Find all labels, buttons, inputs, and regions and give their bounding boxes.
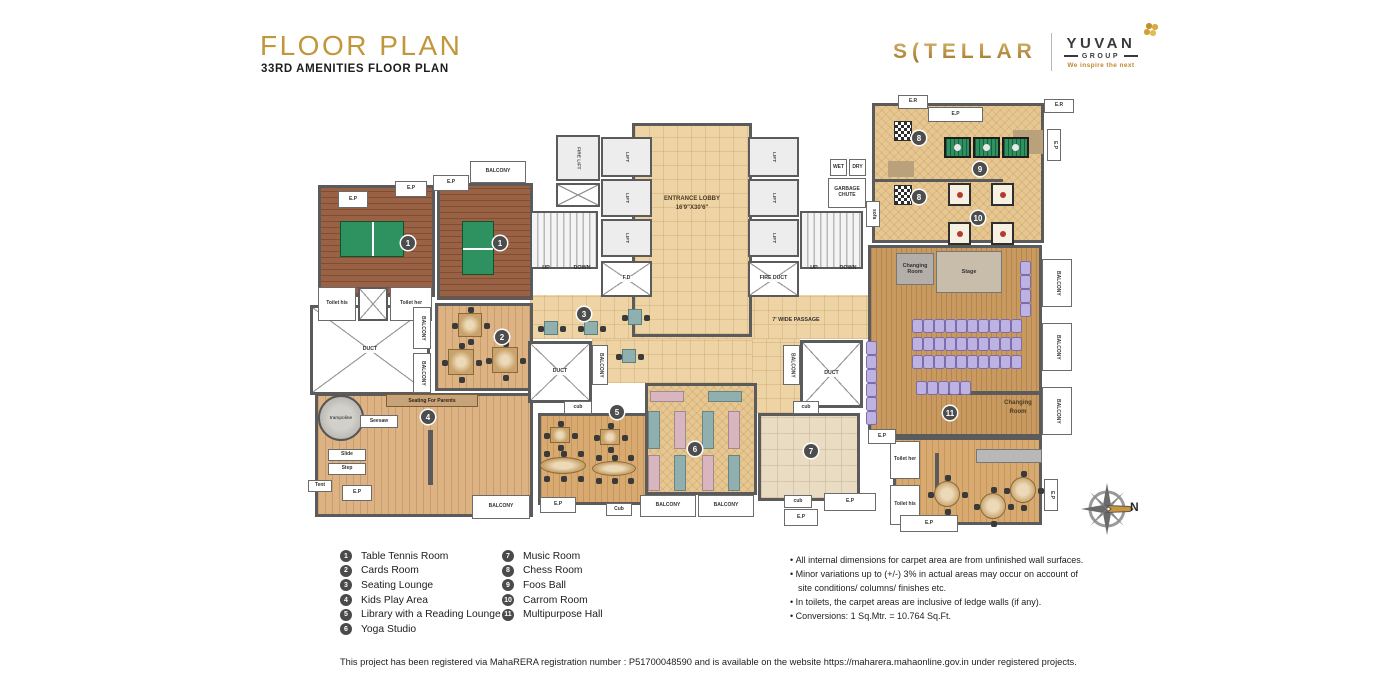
legend-label: Multipurpose Hall bbox=[523, 609, 603, 620]
chair-icon bbox=[1011, 319, 1022, 333]
cards-room bbox=[435, 303, 533, 391]
chair-icon bbox=[596, 478, 602, 484]
counter bbox=[976, 449, 1042, 463]
chair-icon bbox=[578, 451, 584, 457]
chair-column bbox=[1020, 261, 1031, 317]
chair-icon bbox=[974, 504, 980, 510]
changing-room-label: ChangingRoom bbox=[994, 399, 1042, 417]
vopen-balcony: BALCONY bbox=[783, 345, 800, 385]
chair-icon bbox=[956, 337, 967, 351]
legend-column-2: 7Music Room8Chess Room9Foos Ball10Carrom… bbox=[502, 549, 603, 622]
legend-marker: 5 bbox=[340, 609, 352, 621]
yuvan-wordmark: YUVAN bbox=[1066, 36, 1135, 51]
legend-label: Yoga Studio bbox=[361, 624, 416, 635]
chair-icon bbox=[945, 475, 951, 481]
yuvan-logo: YUVAN GROUP We inspire the next bbox=[1064, 36, 1138, 69]
open-cub: cub bbox=[564, 401, 592, 414]
xbox-f-d: F.D bbox=[601, 261, 652, 297]
note-item: In toilets, the carpet areas are inclusi… bbox=[790, 595, 1092, 609]
mk-7: 7 bbox=[804, 444, 818, 458]
yoga-mat bbox=[728, 455, 740, 491]
yoga-mat bbox=[728, 411, 740, 449]
open-toilet-his: Toilet his bbox=[318, 287, 356, 321]
chair-icon bbox=[989, 355, 1000, 369]
round-table bbox=[980, 493, 1006, 519]
chair-icon bbox=[962, 492, 968, 498]
chair-icon bbox=[503, 375, 509, 381]
chair-icon bbox=[468, 307, 474, 313]
mk-10: 10 bbox=[971, 211, 985, 225]
brand-logos: S(TELLAR YUVAN GROUP We inspire the next bbox=[893, 28, 1138, 76]
lift-lift: LIFT bbox=[748, 219, 799, 257]
page-title: FLOOR PLAN bbox=[260, 30, 462, 62]
chair-row bbox=[912, 337, 1022, 350]
carrom-board bbox=[991, 222, 1014, 245]
lounge-table bbox=[584, 321, 598, 335]
chair-icon bbox=[1008, 504, 1014, 510]
chair-icon bbox=[866, 341, 877, 355]
mk-4: 4 bbox=[421, 410, 435, 424]
chair-icon bbox=[644, 315, 650, 321]
chair-icon bbox=[923, 337, 934, 351]
chair-icon bbox=[927, 381, 938, 395]
chair-icon bbox=[452, 323, 458, 329]
note-item: All internal dimensions for carpet area … bbox=[790, 553, 1092, 567]
open-e-p: E.P bbox=[338, 191, 368, 208]
chess-table bbox=[894, 121, 912, 141]
open-balcony: BALCONY bbox=[698, 495, 754, 517]
open-cub: Cub bbox=[606, 503, 632, 516]
reading-table bbox=[550, 427, 570, 443]
chair-icon bbox=[912, 337, 923, 351]
chair-icon bbox=[866, 411, 877, 425]
chair-icon bbox=[622, 435, 628, 441]
chess-table bbox=[894, 185, 912, 205]
chair-icon bbox=[866, 355, 877, 369]
chair-icon bbox=[1020, 303, 1031, 317]
legend-item-seating-lounge: 3Seating Lounge bbox=[340, 578, 501, 593]
vopen-balcony: BALCONY bbox=[1042, 387, 1072, 435]
chair-icon bbox=[945, 355, 956, 369]
lift-lift: LIFT bbox=[748, 179, 799, 217]
yoga-mat bbox=[674, 411, 686, 449]
open-e-p: E.P bbox=[824, 493, 876, 511]
chair-icon bbox=[1021, 505, 1027, 511]
chair-icon bbox=[1011, 337, 1022, 351]
mk-6: 6 bbox=[688, 442, 702, 456]
open-cub: cub bbox=[793, 401, 819, 414]
open-tent: Tent bbox=[308, 480, 332, 492]
chair-icon bbox=[468, 339, 474, 345]
legend-marker: 10 bbox=[502, 594, 514, 606]
changing-room: Changing Room bbox=[896, 253, 934, 285]
mk-11: 11 bbox=[943, 406, 957, 420]
chair-icon bbox=[596, 455, 602, 461]
chair-icon bbox=[991, 487, 997, 493]
floor-plan-page: FLOOR PLAN 33RD AMENITIES FLOOR PLAN S(T… bbox=[0, 0, 1400, 700]
vopen-balcony: BALCONY bbox=[413, 307, 431, 349]
chair-icon bbox=[560, 326, 566, 332]
legend-label: Carrom Room bbox=[523, 595, 588, 606]
yoga-mat bbox=[650, 391, 684, 402]
compass-north-label: N bbox=[1130, 500, 1139, 514]
chair-icon bbox=[561, 476, 567, 482]
mk-9: 9 bbox=[973, 162, 987, 176]
vopen-sofa: sofa bbox=[866, 201, 880, 227]
mk-1: 1 bbox=[493, 236, 507, 250]
legend-marker: 11 bbox=[502, 609, 514, 621]
legend-label: Library with a Reading Lounge bbox=[361, 609, 501, 620]
vopen-balcony: BALCONY bbox=[592, 345, 608, 385]
chair-icon bbox=[1000, 319, 1011, 333]
lounge-floor bbox=[592, 339, 758, 383]
open-e-p: E.P bbox=[868, 429, 896, 444]
chair-icon bbox=[938, 381, 949, 395]
legend-marker: 7 bbox=[502, 550, 514, 562]
chair-icon bbox=[1000, 337, 1011, 351]
chair-icon bbox=[934, 355, 945, 369]
chair-icon bbox=[956, 319, 967, 333]
card-table bbox=[458, 313, 482, 337]
chair-icon bbox=[1020, 261, 1031, 275]
legend-item-chess-room: 8Chess Room bbox=[502, 564, 603, 579]
chair-icon bbox=[442, 360, 448, 366]
chair-icon bbox=[866, 397, 877, 411]
chair-icon bbox=[476, 360, 482, 366]
chair-icon bbox=[486, 358, 492, 364]
chair-icon bbox=[622, 315, 628, 321]
entrance-lobby-label: ENTRANCE LOBBY16'9"X30'6" bbox=[636, 195, 748, 213]
games-divider-wall bbox=[875, 179, 1003, 182]
plabel-7-wide-passage: 7' WIDE PASSAGE bbox=[746, 317, 846, 323]
dash-left bbox=[1064, 55, 1078, 57]
legend-marker: 2 bbox=[340, 565, 352, 577]
plabel-up: UP bbox=[802, 265, 826, 271]
mk-8: 8 bbox=[912, 190, 926, 204]
chair-icon bbox=[628, 455, 634, 461]
open-balcony: BALCONY bbox=[640, 495, 696, 517]
table-tennis-table bbox=[340, 221, 404, 257]
compass-icon bbox=[1080, 482, 1134, 536]
chair-icon bbox=[544, 433, 550, 439]
yoga-mat bbox=[674, 455, 686, 491]
chair-icon bbox=[558, 421, 564, 427]
carrom-board bbox=[948, 222, 971, 245]
lounge-table bbox=[622, 349, 636, 363]
legend-marker: 1 bbox=[340, 550, 352, 562]
brand-divider bbox=[1051, 33, 1052, 71]
chair-column bbox=[866, 341, 877, 425]
legend-item-kids-play-area: 4Kids Play Area bbox=[340, 593, 501, 608]
vopen-balcony: BALCONY bbox=[1042, 323, 1072, 371]
legend-label: Kids Play Area bbox=[361, 595, 428, 606]
mk-3: 3 bbox=[577, 307, 591, 321]
open-e-r: E.R bbox=[1044, 99, 1074, 113]
chair-icon bbox=[916, 381, 927, 395]
chair-icon bbox=[1004, 488, 1010, 494]
mk-8: 8 bbox=[912, 131, 926, 145]
plabel-up: UP bbox=[534, 265, 558, 271]
open-e-p: E.P bbox=[433, 175, 469, 191]
carrom-board bbox=[991, 183, 1014, 206]
legend-item-library-with-a-reading-lounge: 5Library with a Reading Lounge bbox=[340, 607, 501, 622]
open-step: Step bbox=[328, 463, 366, 475]
legend-item-table-tennis-room: 1Table Tennis Room bbox=[340, 549, 501, 564]
mk-2: 2 bbox=[495, 330, 509, 344]
dash-right bbox=[1124, 55, 1138, 57]
foosball-table bbox=[944, 137, 971, 158]
legend-label: Music Room bbox=[523, 551, 580, 562]
legend-marker: 3 bbox=[340, 579, 352, 591]
mk-1: 1 bbox=[401, 236, 415, 250]
vopen-balcony: BALCONY bbox=[413, 353, 431, 393]
stellar-logo: S(TELLAR bbox=[893, 40, 1037, 64]
floor-plan-drawing: DUCTDUCTDUCTToilet hisToilet herLIFTLIFT… bbox=[300, 95, 1085, 540]
round-table bbox=[934, 481, 960, 507]
open-e-p: E.P bbox=[395, 181, 427, 197]
stairs bbox=[800, 211, 863, 269]
chair-icon bbox=[967, 337, 978, 351]
page-subtitle: 33RD AMENITIES FLOOR PLAN bbox=[261, 63, 449, 75]
duct-duct: DUCT bbox=[800, 340, 863, 408]
lounge-table bbox=[544, 321, 558, 335]
reading-table bbox=[592, 461, 636, 476]
open-e-p: E.P bbox=[784, 509, 818, 526]
chair-icon bbox=[956, 355, 967, 369]
stage: Stage bbox=[936, 251, 1002, 293]
table-tennis-table bbox=[462, 221, 494, 275]
chair-icon bbox=[912, 319, 923, 333]
open-slide: Slide bbox=[328, 449, 366, 461]
chair-icon bbox=[923, 355, 934, 369]
carrom-board bbox=[948, 183, 971, 206]
chair-icon bbox=[949, 381, 960, 395]
reading-table bbox=[600, 429, 620, 445]
legend-item-foos-ball: 9Foos Ball bbox=[502, 578, 603, 593]
chair-icon bbox=[866, 383, 877, 397]
xbox bbox=[358, 287, 388, 321]
vopen-balcony: BALCONY bbox=[1042, 259, 1072, 307]
chair-icon bbox=[945, 319, 956, 333]
chair-icon bbox=[978, 355, 989, 369]
card-table bbox=[448, 349, 474, 375]
lift-lift: LIFT bbox=[601, 137, 652, 177]
chair-icon bbox=[600, 326, 606, 332]
lift-lift: LIFT bbox=[748, 137, 799, 177]
legend-item-carrom-room: 10Carrom Room bbox=[502, 593, 603, 608]
tramp-trampoline: trampoline bbox=[318, 395, 364, 441]
chair-icon bbox=[484, 323, 490, 329]
open-toilet-her: Toilet her bbox=[890, 441, 920, 479]
legend-marker: 8 bbox=[502, 565, 514, 577]
yoga-mat bbox=[708, 391, 742, 402]
chair-icon bbox=[1020, 289, 1031, 303]
chair-icon bbox=[594, 435, 600, 441]
yuvan-tagline: We inspire the next bbox=[1067, 62, 1134, 69]
chair-icon bbox=[612, 478, 618, 484]
chair-icon bbox=[578, 326, 584, 332]
open-e-p: E.P bbox=[342, 485, 372, 501]
plabel-down: DOWN bbox=[566, 265, 598, 271]
legend-column-1: 1Table Tennis Room2Cards Room3Seating Lo… bbox=[340, 549, 501, 637]
open-e-r: E.R bbox=[898, 95, 928, 109]
chair-icon bbox=[960, 381, 971, 395]
chair-icon bbox=[544, 451, 550, 457]
yoga-mat bbox=[702, 411, 714, 449]
lift-lift: LIFT bbox=[601, 219, 652, 257]
chair-icon bbox=[934, 337, 945, 351]
chair-icon bbox=[578, 476, 584, 482]
lift-fire-lift: FIRE LIFT bbox=[556, 135, 600, 181]
chair-icon bbox=[538, 326, 544, 332]
chair-icon bbox=[608, 423, 614, 429]
card-table bbox=[492, 347, 518, 373]
chair-icon bbox=[572, 433, 578, 439]
chair-icon bbox=[459, 343, 465, 349]
mk-5: 5 bbox=[610, 405, 624, 419]
chair-icon bbox=[616, 354, 622, 360]
legend-item-cards-room: 2Cards Room bbox=[340, 564, 501, 579]
xbox bbox=[556, 183, 600, 207]
chair-row bbox=[912, 319, 1022, 332]
chair-icon bbox=[1011, 355, 1022, 369]
open-balcony: BALCONY bbox=[472, 495, 530, 519]
chair-icon bbox=[967, 355, 978, 369]
legend-item-multipurpose-hall: 11Multipurpose Hall bbox=[502, 607, 603, 622]
legend-label: Table Tennis Room bbox=[361, 551, 448, 562]
kids-wall bbox=[428, 430, 433, 485]
open-e-p: E.P bbox=[928, 107, 983, 122]
chair-icon bbox=[989, 319, 1000, 333]
legend-marker: 9 bbox=[502, 579, 514, 591]
chair-icon bbox=[945, 509, 951, 515]
yuvan-group-line: GROUP bbox=[1064, 53, 1138, 60]
legend-label: Foos Ball bbox=[523, 580, 566, 591]
vopen-e-p: E.P bbox=[1044, 479, 1058, 511]
chair-icon bbox=[1021, 471, 1027, 477]
chair-row bbox=[916, 381, 971, 394]
chair-icon bbox=[459, 377, 465, 383]
open-seesaw: Seesaw bbox=[360, 415, 398, 428]
yuvan-group-label: GROUP bbox=[1082, 53, 1120, 60]
chair-icon bbox=[934, 319, 945, 333]
legend-item-music-room: 7Music Room bbox=[502, 549, 603, 564]
note-item: Conversions: 1 Sq.Mtr. = 10.764 Sq.Ft. bbox=[790, 609, 1092, 623]
chair-icon bbox=[561, 451, 567, 457]
legend-label: Seating Lounge bbox=[361, 580, 433, 591]
chair-icon bbox=[608, 447, 614, 453]
reading-table bbox=[540, 457, 586, 474]
yoga-mat bbox=[648, 411, 660, 449]
open-e-p: E.P bbox=[900, 515, 958, 532]
chair-icon bbox=[628, 478, 634, 484]
open-e-p: E.P bbox=[540, 497, 576, 513]
chair-icon bbox=[991, 521, 997, 527]
chair-icon bbox=[520, 358, 526, 364]
yoga-mat bbox=[648, 455, 660, 491]
chair-row bbox=[912, 355, 1022, 368]
chair-icon bbox=[912, 355, 923, 369]
duct-duct: DUCT bbox=[528, 341, 592, 403]
legend-item-yoga-studio: 6Yoga Studio bbox=[340, 622, 501, 637]
chair-icon bbox=[945, 337, 956, 351]
yuvan-flower-icon bbox=[1144, 29, 1150, 35]
chair-icon bbox=[978, 319, 989, 333]
chair-icon bbox=[1038, 488, 1044, 494]
chair-icon bbox=[1020, 275, 1031, 289]
xbox-fire-duct: FIRE DUCT bbox=[748, 261, 799, 297]
plabel-down: DOWN bbox=[832, 265, 864, 271]
chair-icon bbox=[928, 492, 934, 498]
chair-icon bbox=[1000, 355, 1011, 369]
foosball-table bbox=[1002, 137, 1029, 158]
rera-disclaimer: This project has been registered via Mah… bbox=[340, 657, 1077, 667]
note-item: Minor variations up to (+/-) 3% in actua… bbox=[790, 567, 1092, 595]
round-table bbox=[1010, 477, 1036, 503]
open-garbage-chute: GARBAGE CHUTE bbox=[828, 178, 866, 208]
chair-icon bbox=[544, 476, 550, 482]
open-wet: WET bbox=[830, 159, 847, 176]
wall-fill bbox=[888, 161, 914, 177]
vopen-e-p: E.P bbox=[1047, 129, 1061, 161]
open-dry: DRY bbox=[849, 159, 866, 176]
open-cub: cub bbox=[784, 495, 812, 508]
chair-icon bbox=[989, 337, 1000, 351]
chair-icon bbox=[967, 319, 978, 333]
bench-seating-for-parents: Seating For Parents bbox=[386, 394, 478, 407]
legend-label: Cards Room bbox=[361, 565, 419, 576]
chair-icon bbox=[978, 337, 989, 351]
open-balcony: BALCONY bbox=[470, 161, 526, 183]
legend-marker: 6 bbox=[340, 623, 352, 635]
stairs bbox=[530, 211, 598, 269]
foosball-table bbox=[973, 137, 1000, 158]
notes-list: All internal dimensions for carpet area … bbox=[790, 553, 1092, 623]
legend-label: Chess Room bbox=[523, 565, 583, 576]
yoga-mat bbox=[702, 455, 714, 491]
lounge-table bbox=[628, 309, 642, 325]
chair-icon bbox=[638, 354, 644, 360]
chair-icon bbox=[866, 369, 877, 383]
legend-marker: 4 bbox=[340, 594, 352, 606]
chair-icon bbox=[612, 455, 618, 461]
chair-icon bbox=[923, 319, 934, 333]
